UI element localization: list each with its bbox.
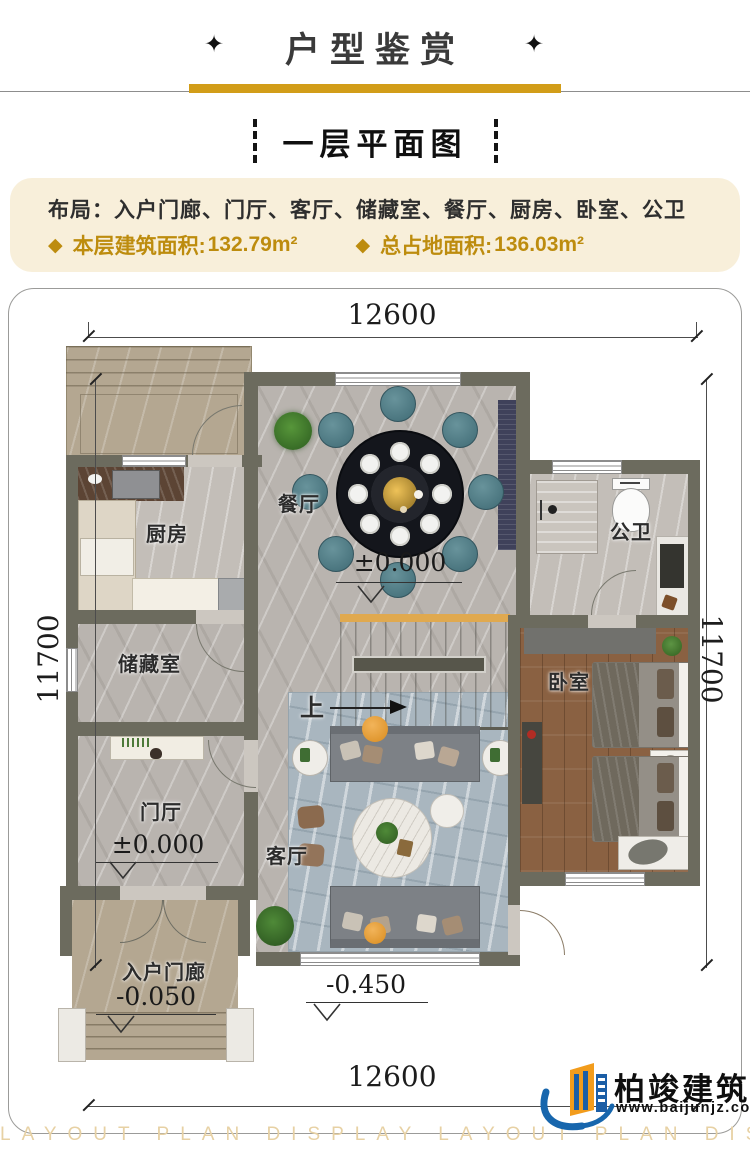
ornament-right-icon: ✦ xyxy=(524,30,544,59)
room-label-living: 客厅 xyxy=(266,840,308,869)
door-opening xyxy=(196,610,244,624)
door-opening xyxy=(188,455,242,467)
floor-area-label: 本层建筑面积: xyxy=(73,230,206,260)
dimension-right: 11700 xyxy=(698,594,728,724)
window xyxy=(335,372,461,386)
toilet-line xyxy=(620,482,640,484)
coffee-table-plant xyxy=(376,822,398,844)
stairs-up-label: 上 xyxy=(300,688,325,723)
dimension-line-left xyxy=(95,380,96,968)
door-opening xyxy=(508,905,520,955)
porch-post-right xyxy=(226,1008,254,1062)
bed-1 xyxy=(592,662,692,748)
kitchen-island xyxy=(132,578,220,614)
terrace-steps xyxy=(66,346,250,390)
dining-chair xyxy=(442,412,478,448)
stairs-arrow-line xyxy=(330,707,392,709)
elevation-triangle xyxy=(108,860,138,880)
elevation-ground: -0.450 xyxy=(306,970,426,999)
shower-head-icon xyxy=(548,505,557,514)
dash-bar-right xyxy=(494,119,498,163)
layout-label: 布局： xyxy=(48,199,114,222)
window xyxy=(66,648,78,692)
dimension-left: 11700 xyxy=(32,594,62,724)
wall xyxy=(516,372,530,624)
kitchen-stove xyxy=(112,470,160,499)
gold-underline xyxy=(189,84,561,93)
elevation-underline xyxy=(336,582,462,583)
room-label-kitchen: 厨房 xyxy=(146,518,188,547)
dimension-bottom: 12600 xyxy=(327,1060,457,1093)
coffee-table-small xyxy=(430,794,464,828)
side-table-plant xyxy=(300,748,310,762)
elevation-porch: -0.050 xyxy=(96,982,216,1011)
layout-rooms: 入户门廊、门厅、客厅、储藏室、餐厅、厨房、卧室、公卫 xyxy=(114,199,686,222)
sofa-top xyxy=(330,726,480,782)
dining-table xyxy=(336,430,464,558)
watermark: LAYOUT PLAN DISPLAY LAYOUT PLAN DISPLAY xyxy=(0,1124,750,1146)
staircase xyxy=(340,622,510,730)
stair-rail xyxy=(352,656,486,673)
plant-dining xyxy=(274,412,312,450)
dining-centerpiece xyxy=(383,477,417,511)
area-line: ◆ 本层建筑面积:132.79m² ◆ 总占地面积:136.03m² xyxy=(48,230,708,260)
page-title: 户型鉴赏 xyxy=(0,22,750,73)
section-title: 一层平面图 xyxy=(283,119,468,164)
page: 户型鉴赏 ✦ ✦ 一层平面图 布局：入户门廊、门厅、客厅、储藏室、餐厅、厨房、卧… xyxy=(0,0,750,1154)
window xyxy=(565,872,645,886)
side-table-plant xyxy=(490,748,500,762)
window xyxy=(552,460,622,474)
wall xyxy=(238,900,250,956)
bath-counter xyxy=(660,544,684,588)
ornament-left-icon: ✦ xyxy=(204,30,224,59)
elevation-triangle xyxy=(106,1014,136,1034)
shower-fixture xyxy=(540,500,542,520)
porch-post-left xyxy=(58,1008,86,1062)
total-area-label: 总占地面积: xyxy=(380,230,492,260)
logo-icon xyxy=(536,1058,616,1134)
dining-chair xyxy=(380,386,416,422)
room-label-storage: 储藏室 xyxy=(118,648,181,677)
ottoman xyxy=(297,805,325,830)
window xyxy=(122,455,186,467)
room-label-bath: 公卫 xyxy=(610,516,652,545)
dimension-top: 12600 xyxy=(327,298,457,331)
sofa-bottom xyxy=(330,886,480,948)
stairs-gold-edge xyxy=(340,614,510,622)
diamond-bullet-icon: ◆ xyxy=(356,234,371,257)
dining-cabinet xyxy=(498,400,516,550)
total-area-value: 136.03m² xyxy=(494,233,584,257)
kitchen-cabinet xyxy=(218,578,246,614)
diamond-bullet-icon: ◆ xyxy=(48,234,63,257)
dimension-line-top xyxy=(88,337,698,338)
wall xyxy=(244,372,258,624)
door-opening xyxy=(588,615,636,628)
floor-area-value: 132.79m² xyxy=(208,233,298,257)
sofa-throw-orange xyxy=(362,716,388,742)
shower-area xyxy=(536,480,598,554)
stairs-arrow-head xyxy=(390,700,407,714)
logo-url: www.baijunjz.com xyxy=(616,1100,750,1116)
room-label-dining: 餐厅 xyxy=(278,488,320,517)
window xyxy=(300,952,480,966)
bed-2 xyxy=(592,756,692,842)
elevation-foyer: ±0.000 xyxy=(98,830,218,859)
side-table-left xyxy=(292,740,328,776)
room-label-bedroom: 卧室 xyxy=(548,666,590,695)
bedroom-rug-top xyxy=(524,628,656,654)
plant-bedroom xyxy=(662,636,682,656)
dining-chair xyxy=(468,474,504,510)
elevation-dining: ±0.000 xyxy=(340,548,460,577)
elevation-triangle xyxy=(312,1002,342,1022)
plant-living xyxy=(256,906,294,946)
door-opening xyxy=(120,886,206,900)
room-label-foyer: 门厅 xyxy=(140,796,182,825)
dash-bar-left xyxy=(253,119,257,163)
wall xyxy=(60,900,72,956)
layout-line: 布局：入户门廊、门厅、客厅、储藏室、餐厅、厨房、卧室、公卫 xyxy=(48,194,708,224)
kitchen-fridge xyxy=(80,538,134,576)
elevation-triangle xyxy=(356,584,386,604)
section-title-row: 一层平面图 xyxy=(0,116,750,166)
sofa-throw-orange xyxy=(364,922,386,944)
dining-chair xyxy=(318,412,354,448)
room-label-porch: 入户门廊 xyxy=(122,956,206,985)
wardrobe-accent xyxy=(527,730,536,739)
foyer-bowl xyxy=(150,748,162,759)
foyer-plant xyxy=(122,738,152,747)
